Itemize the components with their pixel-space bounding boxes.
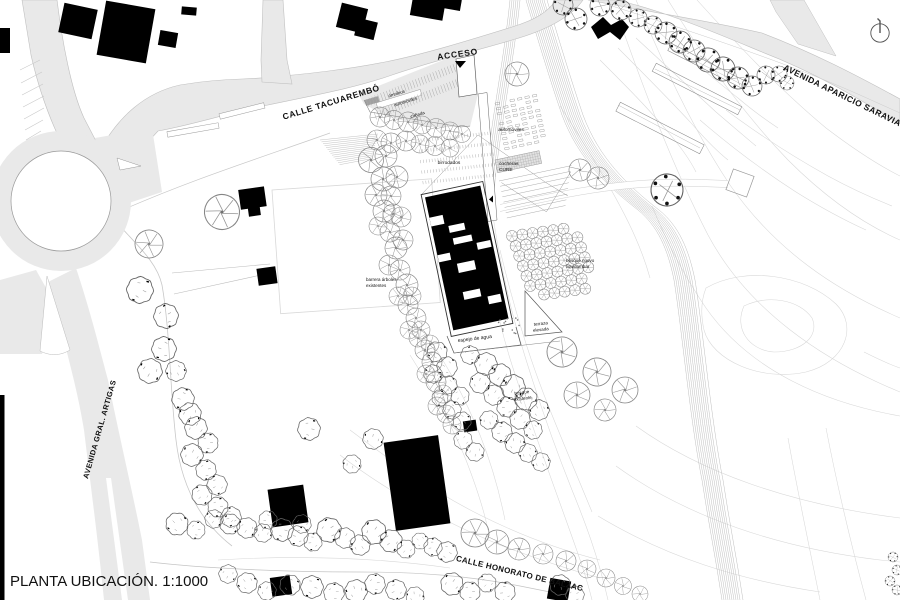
svg-text:automóviles: automóviles <box>498 127 524 133</box>
svg-text:cocheras: cocheras <box>499 161 519 167</box>
svg-text:PLANTA UBICACIÓN. 1:1000: PLANTA UBICACIÓN. 1:1000 <box>10 573 208 590</box>
svg-text:bosque nuevo: bosque nuevo <box>566 258 595 263</box>
svg-text:liquidambar: liquidambar <box>566 264 590 269</box>
svg-text:birrodados: birrodados <box>438 160 461 166</box>
svg-text:barrera árboles: barrera árboles <box>366 277 397 282</box>
svg-text:existentes: existentes <box>366 283 387 288</box>
svg-text:CURE: CURE <box>499 167 513 173</box>
